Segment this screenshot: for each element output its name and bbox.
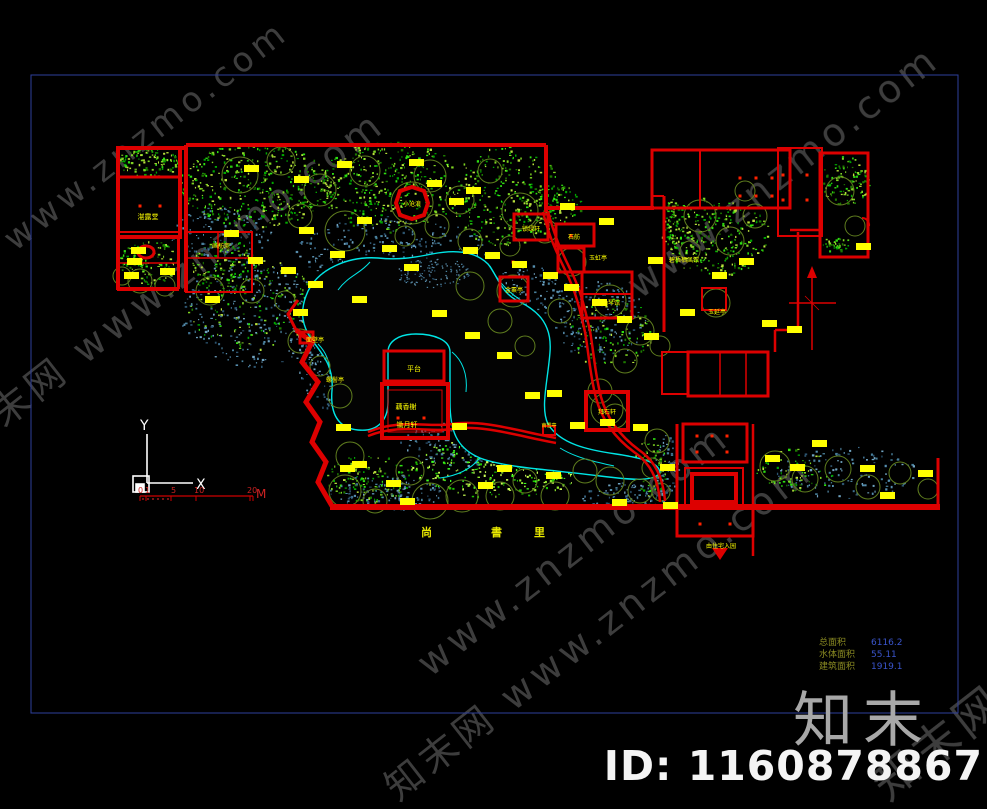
room-label: 藕香榭 (396, 402, 417, 411)
room-label: 玉延亭 (708, 308, 726, 316)
compass-icon (789, 266, 836, 350)
scale-unit: M (256, 487, 266, 501)
stat-label: 水体面积 (819, 649, 871, 661)
room-label: 面壁亭 (306, 336, 324, 344)
stat-value: 6116.2 (871, 637, 917, 649)
room-label: 坡仙琴馆 (596, 299, 620, 307)
scale-tick: 1 (145, 486, 150, 495)
axis-y-label: Y (139, 418, 149, 434)
room-label: 拜石轩 (598, 408, 616, 416)
room-label: 南雪亭 (541, 422, 556, 429)
scale-bar: 0151020M (138, 486, 266, 501)
street-char: 尚 (421, 524, 432, 540)
street-char: 里 (534, 524, 545, 540)
room-label: 螺髻亭 (326, 376, 344, 384)
room-label: 金粟亭 (505, 286, 523, 294)
ucs-axis-icon: Y X (133, 418, 206, 493)
watermark-text: www.znzmo.com (618, 36, 947, 307)
room-label: 石舫 (568, 233, 580, 241)
room-label: 画舫斋 (212, 242, 230, 250)
room-label: 碧梧栖凤馆 (669, 256, 699, 264)
scale-tick: 0 (138, 486, 143, 495)
room-label: 小沧浪 (403, 200, 421, 208)
room-label: 锁绿轩 (522, 225, 540, 233)
table-row: 总面积 6116.2 (819, 637, 917, 649)
room-label: 由住宅入园 (706, 542, 736, 550)
area-statistics-table: 总面积 6116.2 水体面积 55.11 建筑面积 1919.1 (819, 637, 917, 673)
stat-value: 55.11 (871, 649, 917, 661)
table-row: 水体面积 55.11 (819, 649, 917, 661)
room-label: 平台 (407, 364, 421, 373)
image-id-text: ID: 1160878867 (604, 742, 983, 790)
street-char: 書 (491, 524, 502, 540)
room-label: 玉虹亭 (589, 254, 607, 262)
room-label: 锄月轩 (397, 420, 418, 429)
room-label: 湛露堂 (138, 212, 159, 221)
scale-tick: 5 (171, 486, 176, 495)
cad-preview-image: 知末网 www.znzmo.com www.znzmo.com www.znzm… (0, 0, 987, 809)
scale-tick: 10 (194, 486, 204, 495)
stat-label: 总面积 (819, 637, 871, 649)
